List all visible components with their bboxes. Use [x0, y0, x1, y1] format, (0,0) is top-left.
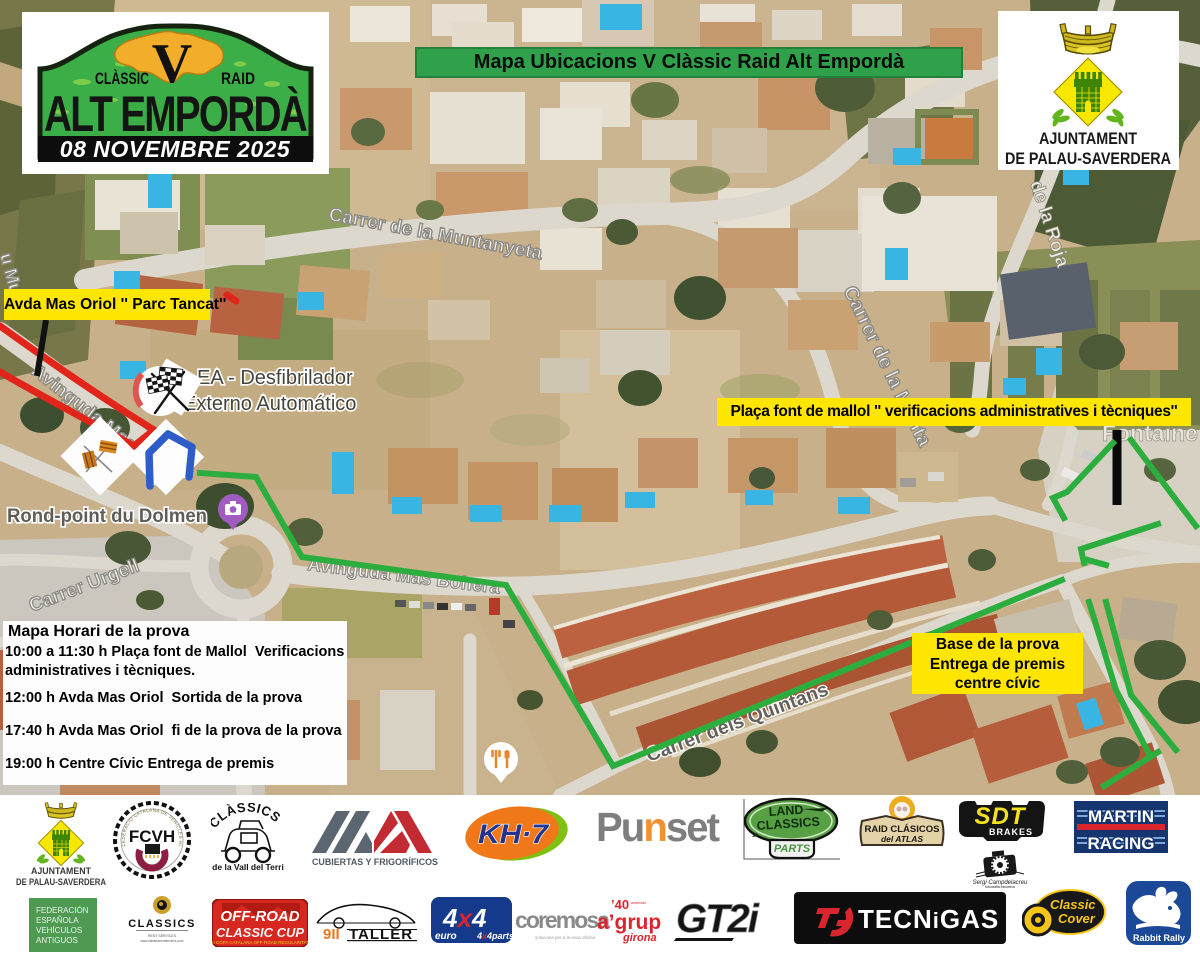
svg-text:CLASSIC CUP: CLASSIC CUP	[216, 925, 304, 940]
svg-text:SDT: SDT	[975, 803, 1027, 830]
svg-text:RAID: RAID	[221, 69, 255, 88]
svg-text:BRAKES: BRAKES	[989, 827, 1033, 837]
svg-text:FCVH: FCVH	[129, 827, 175, 846]
svg-text:solucions per a la seva oficin: solucions per a la seva oficina	[535, 935, 596, 940]
svg-text:KH·7: KH·7	[478, 819, 550, 849]
svg-text:III COPA CATALANA OFF-ROAD REG: III COPA CATALANA OFF-ROAD REGULARITAT	[212, 940, 308, 945]
svg-text:RENT SERVICES: RENT SERVICES	[148, 934, 177, 938]
svg-text:Classic: Classic	[1050, 897, 1096, 912]
svg-text:girona: girona	[622, 932, 657, 944]
svg-text:DE PALAU-SAVERDERA: DE PALAU-SAVERDERA	[16, 877, 106, 887]
svg-text:AJUNTAMENT: AJUNTAMENT	[31, 866, 91, 876]
svg-text:ANTIGUOS: ANTIGUOS	[36, 936, 78, 945]
svg-text:V: V	[152, 33, 192, 95]
svg-text:CUBIERTAS Y FRIGORÍFICOS: CUBIERTAS Y FRIGORÍFICOS	[312, 857, 438, 867]
svg-text:CLÀSSIC: CLÀSSIC	[95, 69, 149, 88]
svg-text:fotografia esportiva: fotografia esportiva	[985, 885, 1015, 888]
svg-text:’40: ’40	[611, 897, 629, 912]
svg-text:de la Vall del Terri: de la Vall del Terri	[212, 862, 284, 872]
svg-text:FEDERACIÓN: FEDERACIÓN	[36, 906, 89, 915]
svg-text:MARTIN: MARTIN	[1088, 807, 1154, 826]
svg-text:EA - Desfibrilador: EA - Desfibrilador	[197, 367, 353, 389]
svg-text:VEHÍCULOS: VEHÍCULOS	[36, 926, 82, 935]
svg-text:a’grup: a’grup	[597, 911, 661, 934]
svg-text:Punset: Punset	[596, 807, 720, 849]
svg-text:4x4parts: 4x4parts	[476, 931, 512, 941]
svg-text:4x4: 4x4	[442, 903, 487, 933]
svg-text:DE PALAU-SAVERDERA: DE PALAU-SAVERDERA	[1005, 149, 1171, 168]
svg-text:GT2i: GT2i	[676, 897, 760, 941]
svg-text:Externo Automático: Externo Automático	[183, 393, 356, 415]
svg-text:coremosa: coremosa	[515, 907, 610, 933]
svg-text:9II: 9II	[323, 926, 340, 943]
svg-text:AJUNTAMENT: AJUNTAMENT	[1039, 129, 1138, 148]
svg-text:del ATLAS: del ATLAS	[881, 834, 923, 844]
svg-text:Rond-point du Dolmen: Rond-point du Dolmen	[7, 506, 207, 527]
svg-text:08 NOVEMBRE 2025: 08 NOVEMBRE 2025	[60, 136, 291, 162]
svg-text:ALT EMPORDÀ: ALT EMPORDÀ	[44, 87, 307, 142]
svg-text:aniversari: aniversari	[631, 901, 646, 905]
svg-text:ESPAÑOLA: ESPAÑOLA	[36, 916, 79, 925]
svg-text:Rabbit Rally: Rabbit Rally	[1133, 933, 1185, 943]
svg-text:Cover: Cover	[1058, 911, 1096, 926]
svg-text:CLASSICS: CLASSICS	[128, 918, 196, 930]
svg-text:www.classicsrentservices.com: www.classicsrentservices.com	[141, 939, 184, 943]
svg-text:OFF-ROAD: OFF-ROAD	[220, 908, 299, 925]
svg-text:PARTS: PARTS	[774, 843, 811, 855]
svg-text:TECNiGAS: TECNiGAS	[858, 904, 999, 934]
svg-text:CLÀSSICS: CLÀSSICS	[211, 803, 284, 831]
svg-text:euro: euro	[435, 931, 457, 942]
svg-text:RACING: RACING	[1087, 834, 1154, 853]
